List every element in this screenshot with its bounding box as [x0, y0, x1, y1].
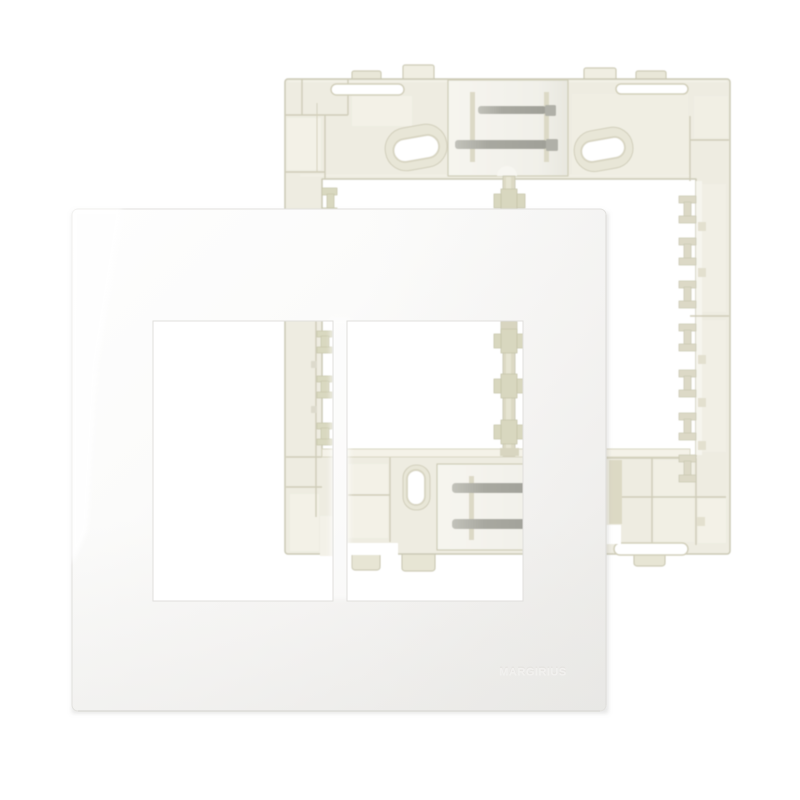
svg-text:MARGIRIUS: MARGIRIUS: [499, 667, 566, 679]
